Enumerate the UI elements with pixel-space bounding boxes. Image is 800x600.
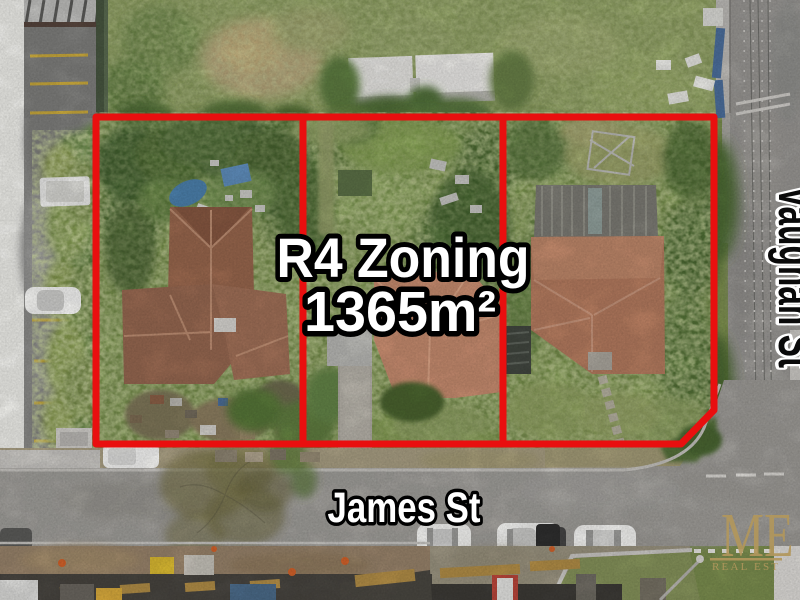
svg-text:Vaughan St: Vaughan St — [767, 186, 800, 368]
svg-text:1365m²: 1365m² — [304, 280, 496, 344]
svg-text:James St: James St — [328, 484, 481, 532]
svg-text:REAL EST: REAL EST — [712, 561, 780, 573]
